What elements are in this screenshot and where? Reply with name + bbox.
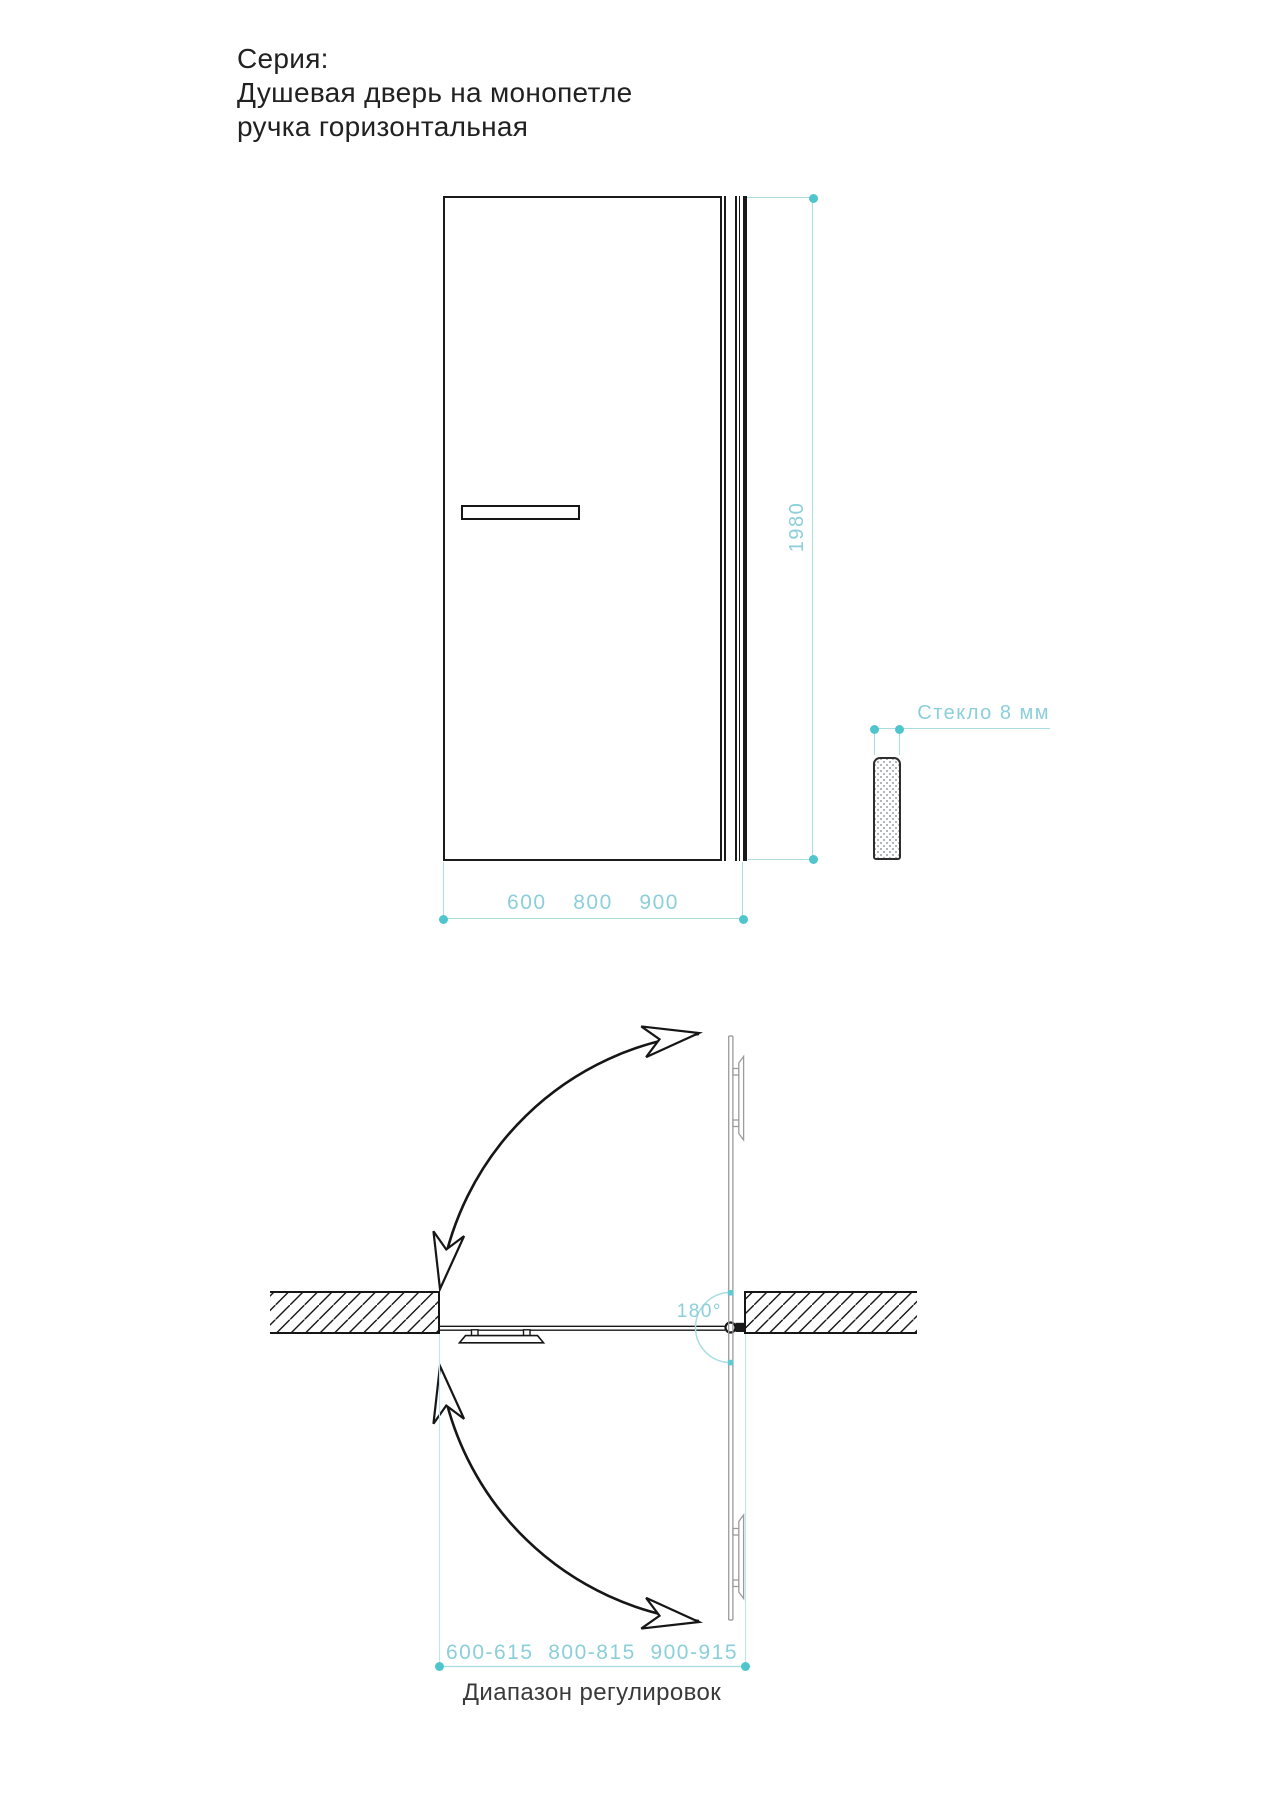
width-dim-label: 600 800 900: [443, 891, 743, 915]
swing-arc-lower: [440, 1369, 699, 1621]
height-dim-dot-top: [809, 194, 818, 203]
wall-left: [270, 1292, 439, 1333]
hinge-profile-line-3: [739, 196, 741, 861]
height-dim-dot-bottom: [809, 855, 818, 864]
door-handle-plan-open-bottom: [733, 1515, 744, 1599]
swing-arrow-lower-end: [641, 1598, 701, 1637]
plan-caption: Диапазон регулировок: [332, 1679, 852, 1707]
plan-view: [200, 1005, 980, 1720]
drawing-page: { "title": { "series_label": "Серия:", "…: [0, 0, 1273, 1800]
angle-arc-marker-bottom: [728, 1360, 734, 1366]
angle-arc-marker-top: [728, 1290, 734, 1296]
hinge-profile-bar: [743, 196, 748, 861]
swing-arrow-upper-start: [425, 1231, 464, 1291]
wall-right-hatch: [745, 1292, 917, 1333]
drawing-title: Серия: Душевая дверь на монопетле ручка …: [237, 42, 633, 144]
title-product-line: Душевая дверь на монопетле: [237, 76, 633, 110]
height-dim-extension-top: [747, 197, 813, 198]
hinge-profile-line-2: [735, 196, 737, 861]
hinge-profile-line-1: [724, 196, 726, 861]
hinge-pivot: [726, 1323, 736, 1333]
door-handle-plan-open-top: [733, 1057, 744, 1141]
door-closed-plan: [440, 1326, 725, 1330]
glass-cross-section: [873, 757, 901, 860]
swing-arc-upper: [440, 1034, 699, 1286]
hinge-wall-mount: [736, 1323, 746, 1332]
title-handle-line: ручка горизонтальная: [237, 110, 633, 144]
height-dim-label: 1980: [784, 487, 810, 567]
door-handle-plan-closed: [460, 1330, 544, 1343]
height-dim-extension-bottom: [748, 859, 813, 860]
swing-arrow-lower-start: [425, 1364, 464, 1424]
glass-dim-dot-right: [895, 725, 904, 734]
width-dim-dot-right: [739, 915, 748, 924]
glass-thickness-label: Стекло 8 мм: [850, 702, 1050, 725]
glass-dim-dot-left: [870, 725, 879, 734]
door-handle-front: [461, 505, 580, 520]
swing-arrow-upper-end: [641, 1018, 701, 1057]
wall-right: [745, 1292, 917, 1333]
title-series-label: Серия:: [237, 42, 633, 76]
range-dim-label: 600-615 800-815 900-915: [342, 1641, 842, 1665]
range-dim: [435, 1334, 750, 1671]
width-dim-dot-left: [439, 915, 448, 924]
height-dim-line: [812, 198, 813, 860]
angle-label: 180°: [640, 1301, 722, 1323]
width-dim-line: [443, 918, 743, 919]
wall-left-hatch: [270, 1292, 439, 1333]
door-glass-panel-front: [443, 196, 722, 861]
